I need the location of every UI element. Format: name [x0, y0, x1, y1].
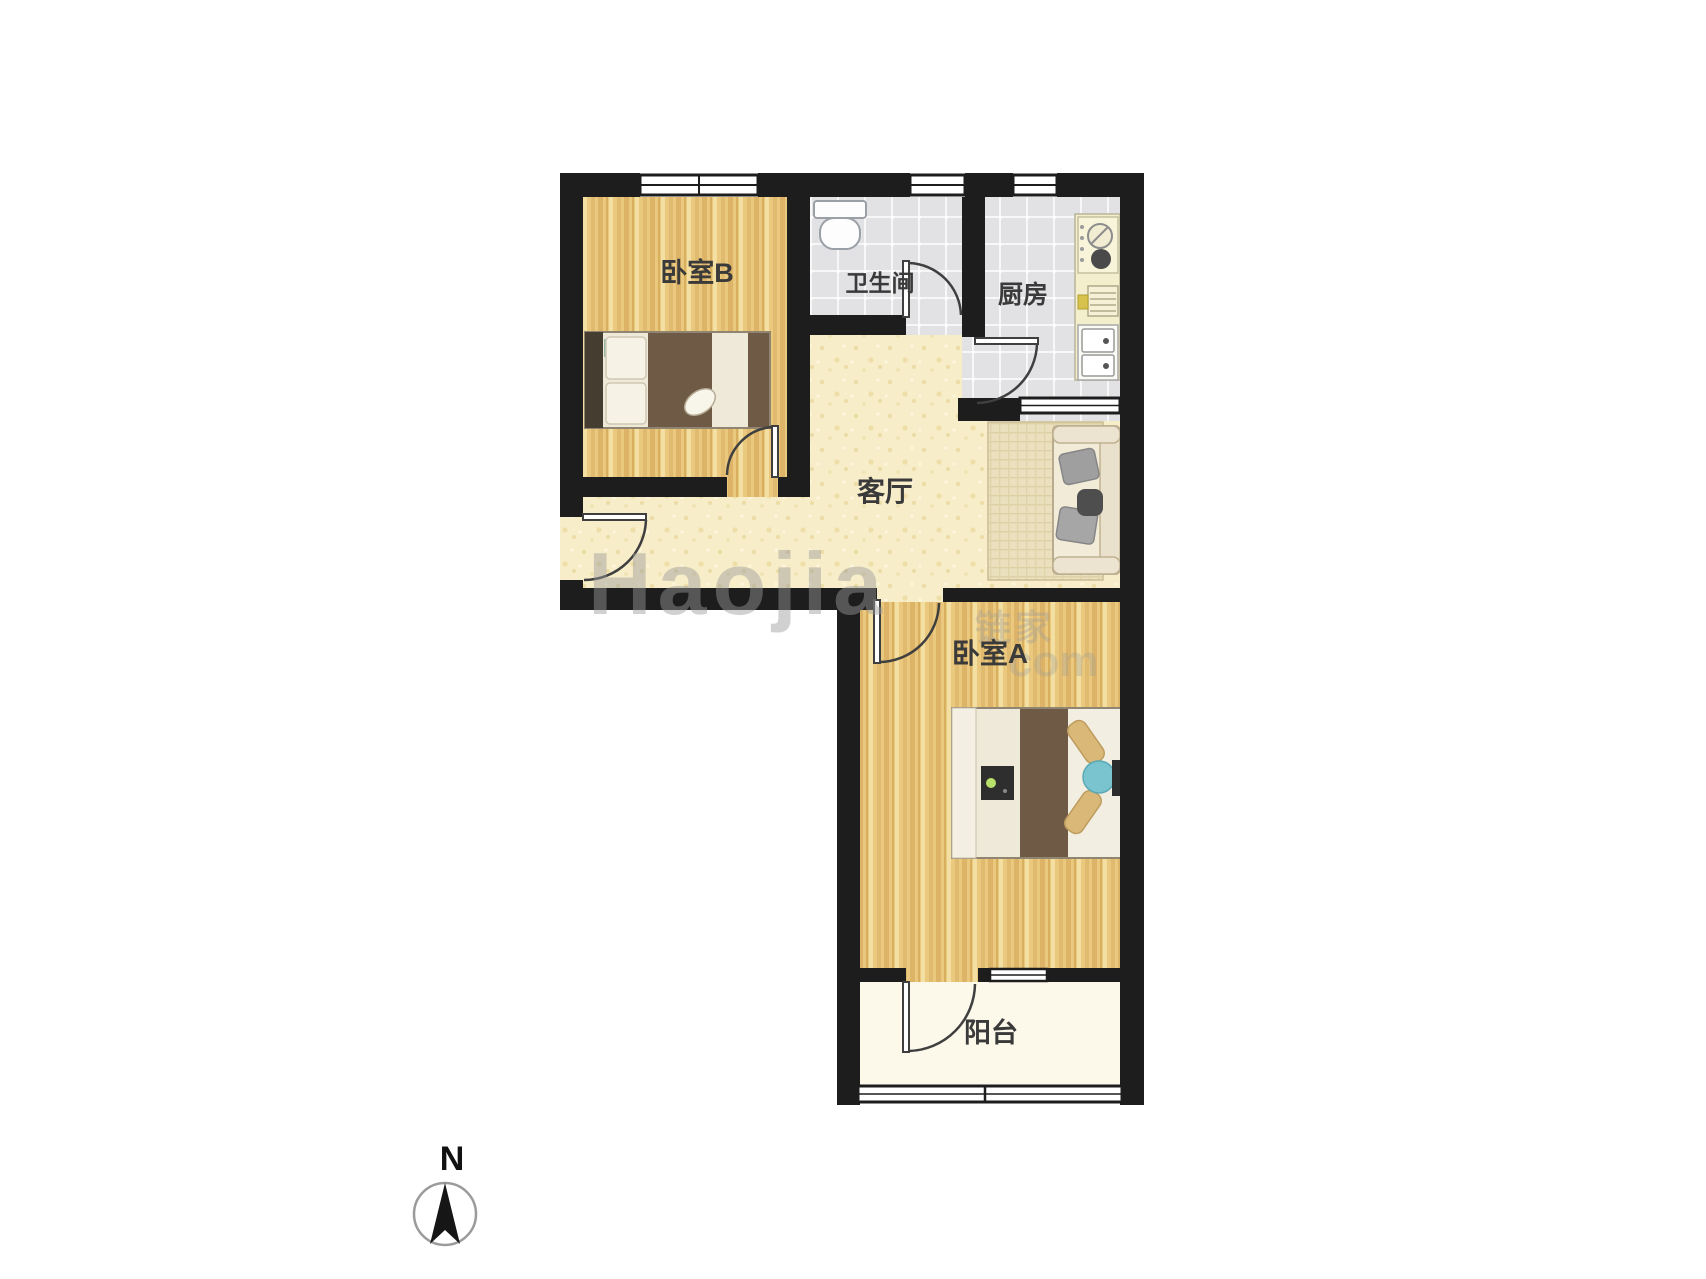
floor-plan-canvas: Haojia 链家 com 卧室B 卫生间 厨房 客厅 卧室A 阳台 N — [0, 0, 1706, 1279]
window-balcony-divider — [990, 969, 1047, 981]
balcony-door-threshold — [906, 968, 978, 982]
toilet — [814, 201, 866, 249]
window-bedroom-b — [640, 175, 758, 195]
laptop — [981, 766, 1014, 800]
bed-bedroom-a — [952, 708, 1120, 858]
bed-bedroom-b — [585, 332, 770, 428]
balcony-label: 阳台 — [964, 1017, 1018, 1048]
window-kitchen-top — [1013, 175, 1057, 195]
compass-north-label: N — [440, 1140, 465, 1178]
kitchen-counter — [1075, 214, 1120, 380]
entrance-threshold — [560, 517, 583, 580]
kitchen-label: 厨房 — [998, 280, 1048, 309]
north-compass-icon: N — [414, 1140, 476, 1245]
stove-icon — [1078, 217, 1118, 273]
bathroom-label: 卫生间 — [846, 270, 915, 296]
sink-icon — [1078, 325, 1118, 380]
living-room-label: 客厅 — [857, 475, 913, 507]
window-balcony-bottom — [858, 1086, 1122, 1102]
window-kitchen-bottom — [1020, 398, 1120, 413]
round-cushion — [1083, 761, 1115, 793]
bathroom-door-threshold — [906, 315, 962, 335]
bedroom-a-label: 卧室A — [952, 637, 1028, 669]
side-table — [1077, 489, 1103, 516]
bedroom-b-door-threshold — [727, 477, 778, 497]
floor-plan: Haojia 链家 com 卧室B 卫生间 厨房 客厅 卧室A 阳台 N — [0, 0, 1706, 1279]
window-bathroom — [910, 175, 965, 195]
living-room-floor-upper — [810, 335, 962, 497]
sofa-pillow — [1058, 448, 1100, 486]
watermark-latin: Haojia — [588, 534, 888, 633]
bedroom-b-label: 卧室B — [660, 257, 734, 288]
sofa — [1053, 426, 1120, 574]
